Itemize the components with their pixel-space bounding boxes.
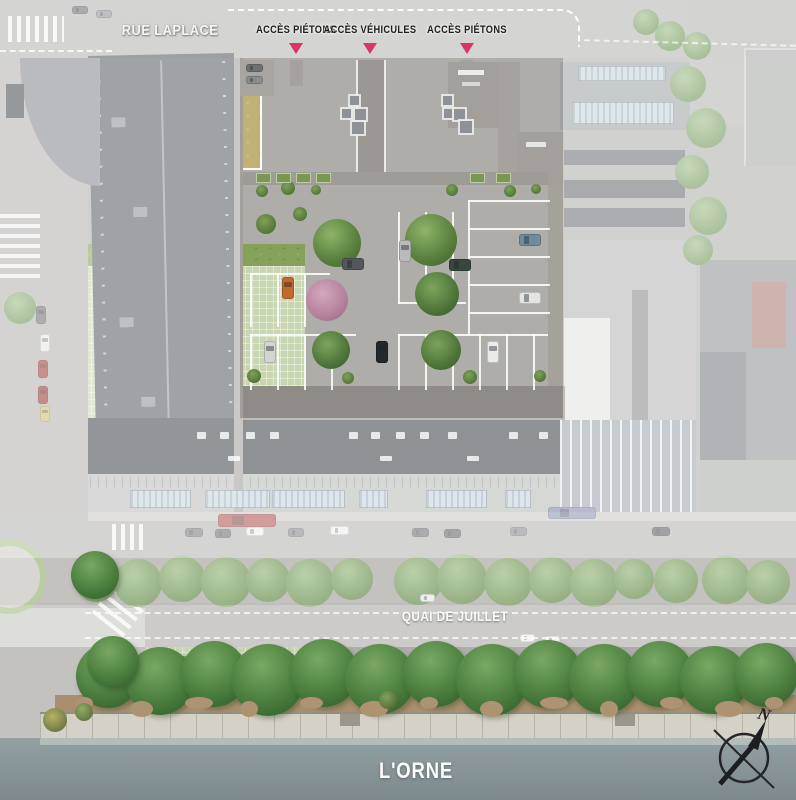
bank-soil xyxy=(130,701,153,717)
bush xyxy=(75,703,93,721)
access-arrow-icon xyxy=(363,43,377,54)
street-label-rue-laplace: RUE LAPLACE xyxy=(122,22,218,39)
bush xyxy=(43,708,67,732)
riverside-layer xyxy=(0,0,796,800)
bank-soil xyxy=(540,697,568,709)
compass-rose: N xyxy=(700,698,792,798)
bank-soil xyxy=(480,701,503,717)
access-label: ACCÈS VÉHICULES xyxy=(324,24,417,36)
bank-soil xyxy=(600,701,618,717)
site-boundary-dashed xyxy=(0,50,112,52)
tree xyxy=(87,636,139,688)
compass-needle xyxy=(720,742,756,784)
bank-soil xyxy=(185,697,213,709)
access-label: ACCÈS PIÉTONS xyxy=(427,24,507,36)
street-label-quai-de-juillet: QUAI DE JUILLET xyxy=(402,608,508,624)
access-arrow-icon xyxy=(289,43,303,54)
bank-soil xyxy=(240,701,258,717)
river-label: L'ORNE xyxy=(379,758,453,784)
compass-north-label: N xyxy=(755,703,774,725)
bank-soil xyxy=(300,697,323,709)
bush xyxy=(379,691,397,709)
access-arrow-icon xyxy=(460,43,474,54)
tree xyxy=(71,551,119,599)
aerial-site-plan: RUE LAPLACE ACCÈS PIÉTONSACCÈS VÉHICULES… xyxy=(0,0,796,800)
bank-soil xyxy=(660,697,683,709)
bank-soil xyxy=(420,697,438,709)
